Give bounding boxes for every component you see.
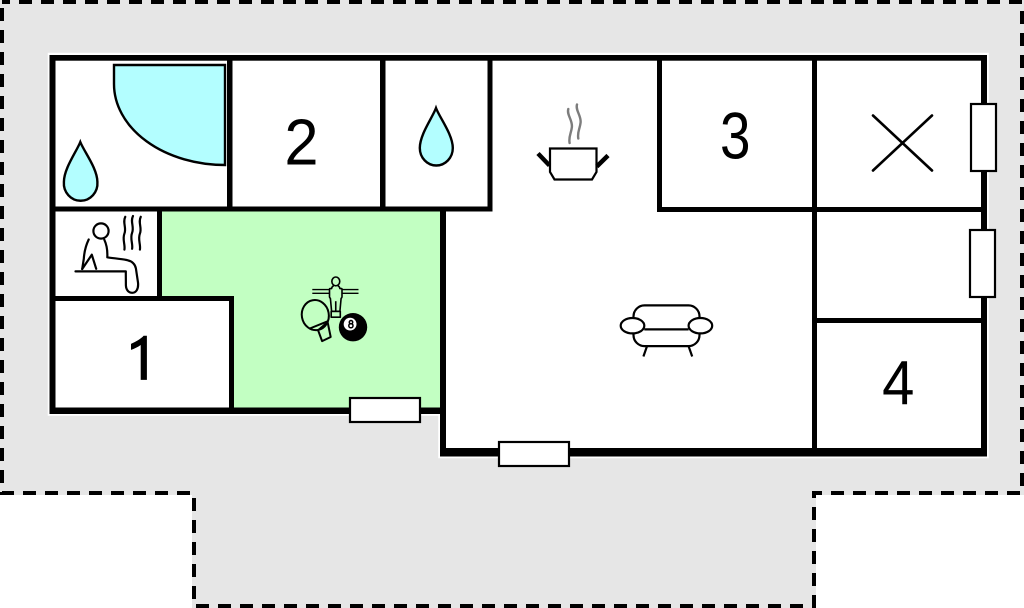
svg-text:3: 3 [720, 99, 750, 173]
svg-text:2: 2 [284, 107, 318, 179]
svg-text:4: 4 [882, 348, 914, 417]
